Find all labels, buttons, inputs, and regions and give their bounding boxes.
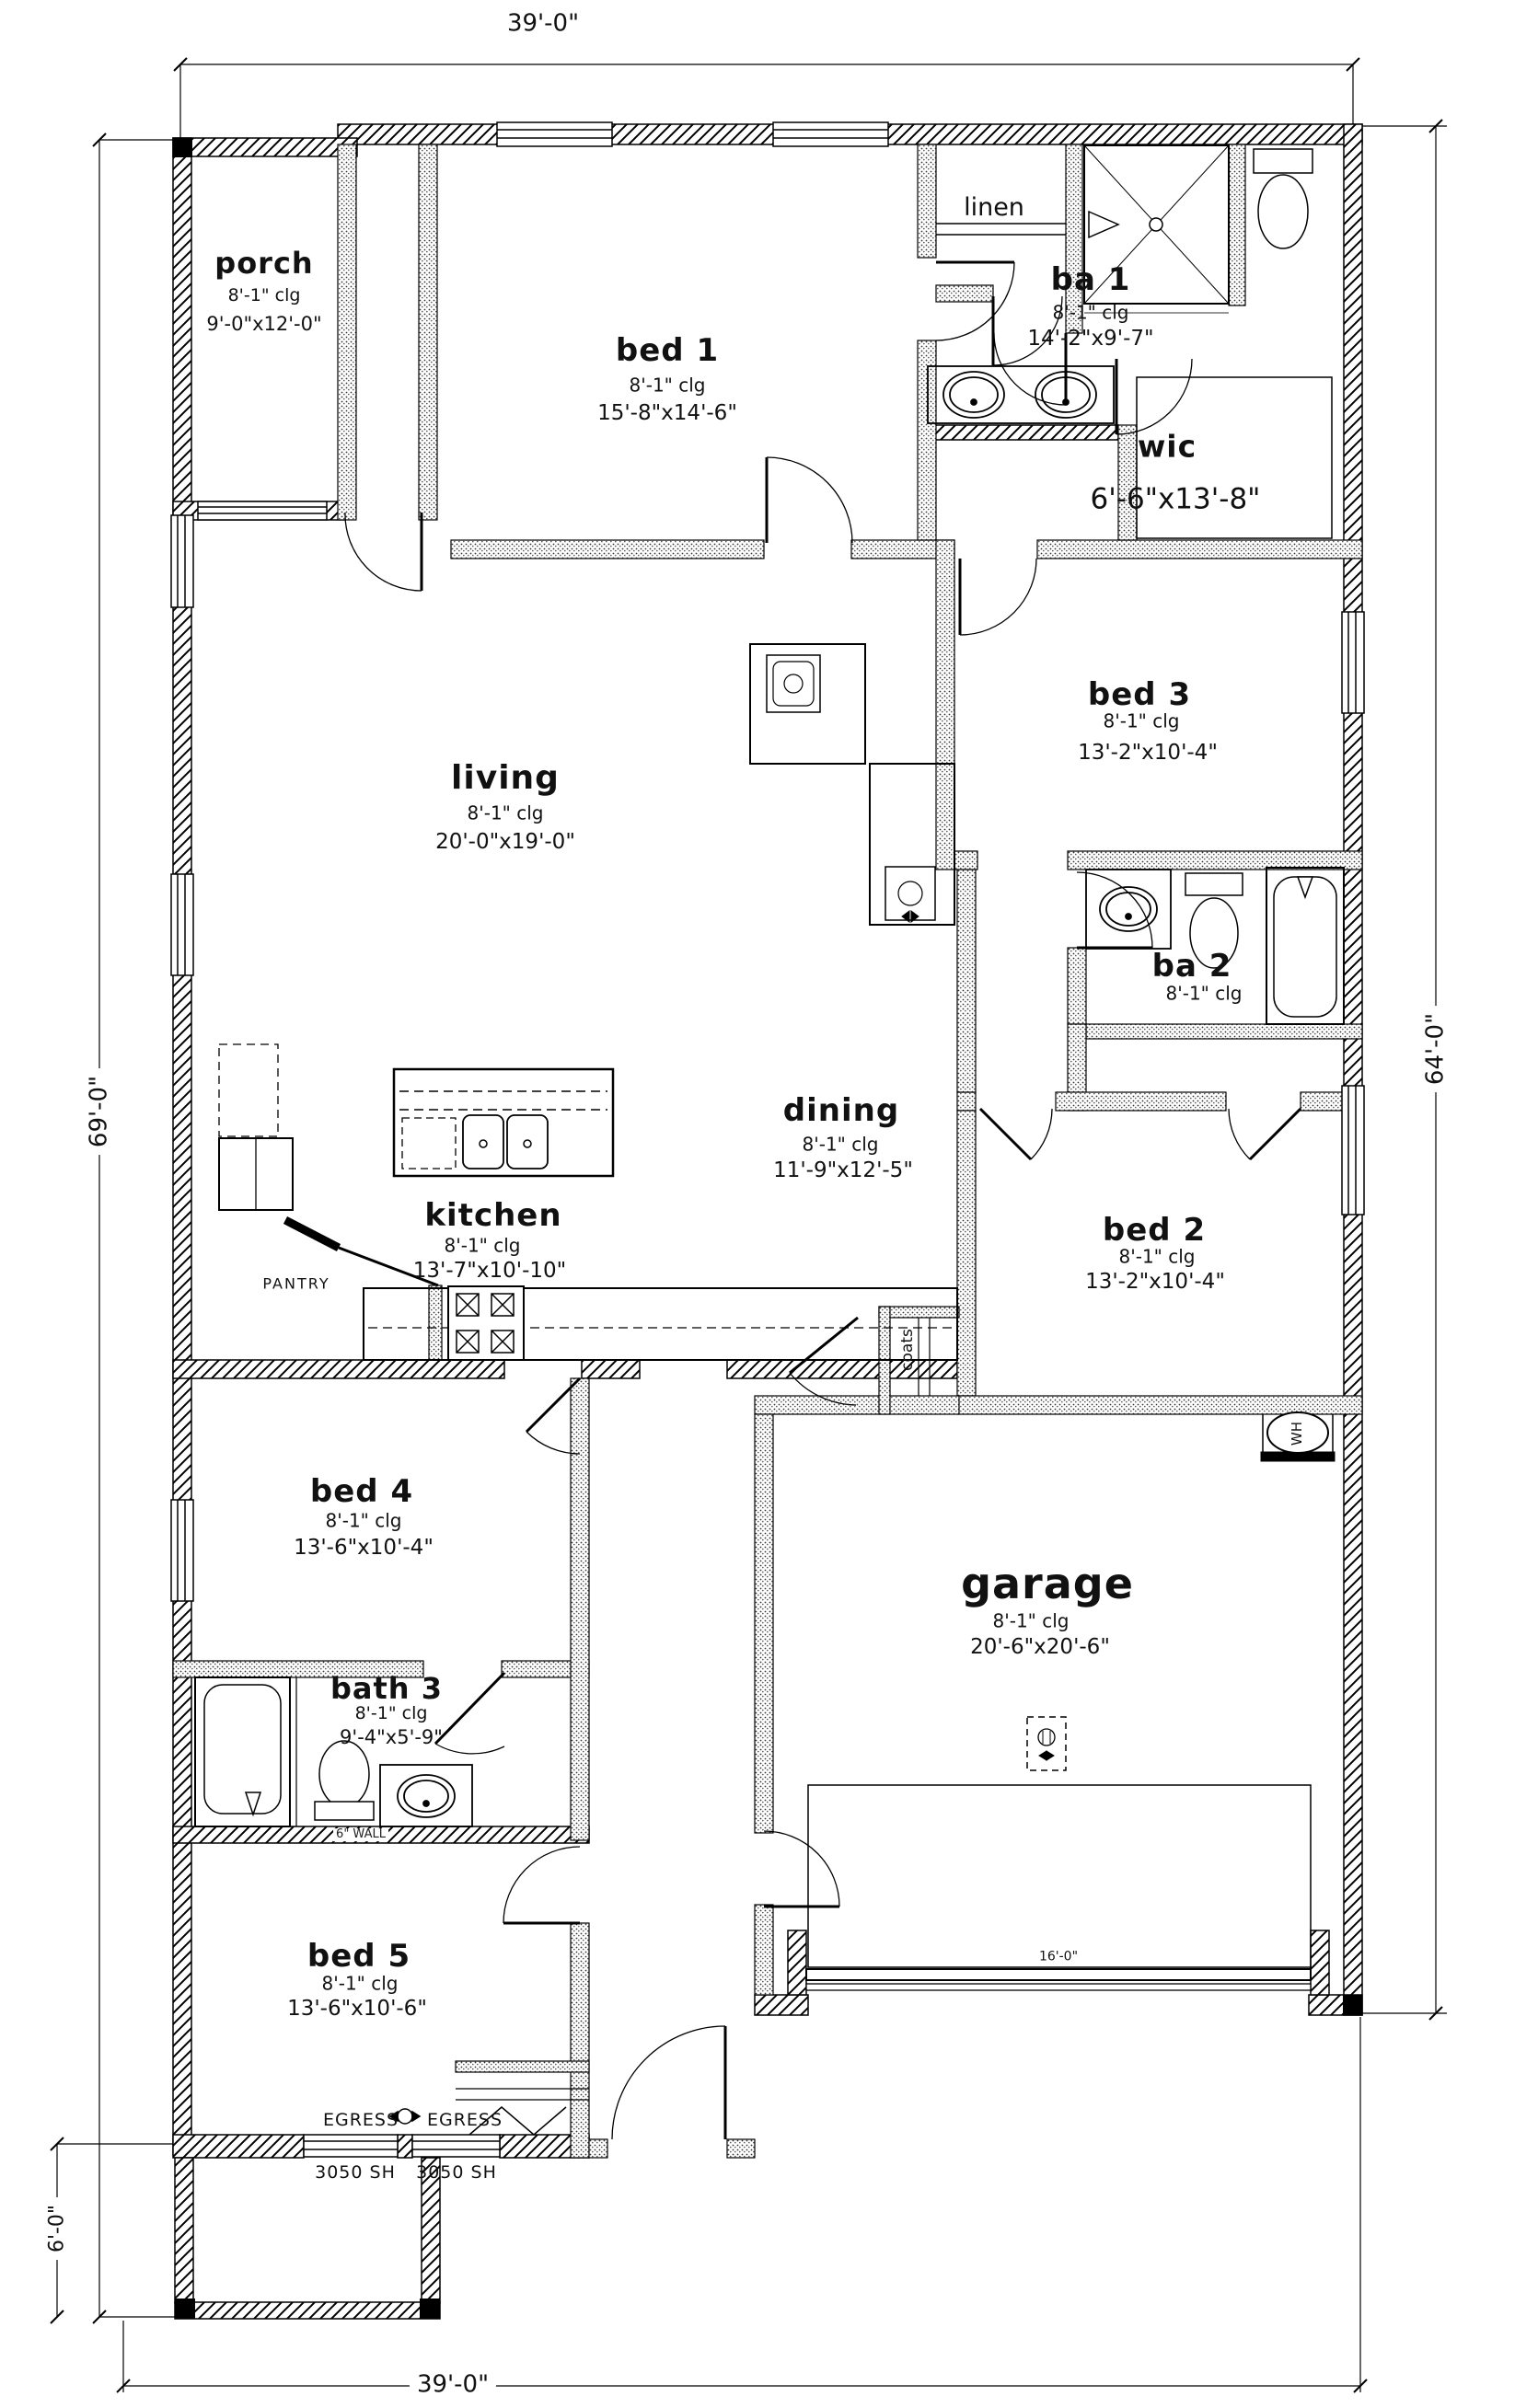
room-dining-clg: 8'-1" clg bbox=[803, 1135, 879, 1155]
bed3-door bbox=[960, 559, 1036, 635]
bed2-door-left bbox=[980, 1109, 1052, 1159]
dim-bottom: 39'-0" bbox=[410, 2372, 496, 2397]
room-bed2: bed 2 bbox=[1103, 1215, 1206, 1248]
room-bed5: bed 5 bbox=[307, 1941, 411, 1974]
room-ba1: ba 1 bbox=[1051, 264, 1131, 297]
room-bed5-size: 13'-6"x10'-6" bbox=[287, 1998, 427, 2020]
fridge-icon bbox=[219, 1138, 293, 1210]
room-porch: porch bbox=[214, 248, 313, 280]
room-ba2: ba 2 bbox=[1152, 951, 1232, 984]
dim-porch-depth: 6'-0" bbox=[46, 2197, 67, 2260]
room-pantry: PANTRY bbox=[262, 1277, 330, 1293]
bed3-window bbox=[1342, 612, 1364, 713]
front-door bbox=[345, 513, 422, 591]
wall-note: 6" WALL bbox=[333, 1828, 388, 1841]
dim-left: 69'-0" bbox=[87, 1068, 111, 1155]
room-bed4-clg: 8'-1" clg bbox=[326, 1512, 402, 1531]
living-window-1 bbox=[171, 515, 193, 607]
room-bed2-size: 13'-2"x10'-4" bbox=[1085, 1271, 1225, 1293]
coats-shelf bbox=[919, 1318, 930, 1396]
bath3-door bbox=[435, 1673, 504, 1754]
garage-door-width: 16'-0" bbox=[1039, 1951, 1078, 1964]
room-coats: coats bbox=[900, 1329, 917, 1371]
attic-access-icon bbox=[1027, 1717, 1066, 1770]
kitchen-island bbox=[394, 1069, 613, 1176]
ba2-door bbox=[1077, 872, 1152, 948]
living-window-2 bbox=[171, 874, 193, 975]
room-garage: garage bbox=[961, 1561, 1134, 1606]
bed5-door bbox=[503, 1847, 580, 1923]
linen-shelf bbox=[936, 224, 1066, 235]
garage-entry-door bbox=[764, 1831, 839, 1907]
room-bed1-size: 15'-8"x14'-6" bbox=[597, 402, 737, 424]
room-dining-size: 11'-9"x12'-5" bbox=[773, 1159, 913, 1181]
room-linen: linen bbox=[964, 195, 1024, 221]
utility-closet-1 bbox=[750, 644, 865, 764]
room-kitchen-clg: 8'-1" clg bbox=[445, 1237, 521, 1256]
room-garage-clg: 8'-1" clg bbox=[993, 1612, 1070, 1631]
vanity-ba2 bbox=[1086, 870, 1171, 949]
room-bed3: bed 3 bbox=[1088, 679, 1191, 712]
room-bed5-clg: 8'-1" clg bbox=[322, 1975, 399, 1994]
room-living-clg: 8'-1" clg bbox=[468, 804, 544, 824]
room-bed4: bed 4 bbox=[310, 1476, 413, 1509]
porch-window bbox=[198, 501, 327, 520]
room-kitchen: kitchen bbox=[424, 1200, 561, 1233]
room-living-size: 20'-0"x19'-0" bbox=[435, 831, 575, 853]
room-bed2-clg: 8'-1" clg bbox=[1119, 1248, 1196, 1267]
egress-label-2: EGRESS bbox=[427, 2112, 503, 2130]
egress-window-1 bbox=[304, 2135, 398, 2157]
toilet-icon-bath3 bbox=[315, 1741, 374, 1820]
room-bath3-clg: 8'-1" clg bbox=[355, 1705, 428, 1723]
dimension-lines bbox=[51, 58, 1447, 2392]
bed1-door bbox=[767, 457, 852, 543]
room-bath3: bath 3 bbox=[330, 1674, 443, 1705]
room-bath3-size: 9'-4"x5'-9" bbox=[340, 1727, 443, 1747]
room-bed3-clg: 8'-1" clg bbox=[1104, 712, 1180, 732]
room-bed4-size: 13'-6"x10'-4" bbox=[294, 1537, 434, 1559]
room-ba1-clg: 8'-1" clg bbox=[1053, 304, 1129, 323]
room-bed1-clg: 8'-1" clg bbox=[630, 376, 706, 396]
room-bed1: bed 1 bbox=[616, 335, 719, 368]
stove-icon bbox=[448, 1286, 524, 1360]
room-porch-clg: 8'-1" clg bbox=[228, 287, 301, 305]
wic-door bbox=[1116, 359, 1192, 434]
room-wic: wic bbox=[1138, 432, 1197, 464]
upper-cabinet bbox=[219, 1044, 278, 1136]
toilet-icon-ba1 bbox=[1254, 149, 1313, 248]
dim-top: 39'-0" bbox=[500, 11, 586, 36]
room-wic-size: 6'-6"x13'-8" bbox=[1091, 485, 1261, 515]
bed2-window bbox=[1342, 1086, 1364, 1215]
window-size-label-2: 3050 SH bbox=[416, 2164, 497, 2183]
room-porch-size: 9'-0"x12'-0" bbox=[206, 314, 321, 334]
bed2-door-right bbox=[1229, 1109, 1301, 1159]
tub-bath3 bbox=[195, 1677, 296, 1826]
room-bed3-size: 13'-2"x10'-4" bbox=[1078, 742, 1218, 764]
vanity-ba1 bbox=[928, 366, 1114, 423]
bed4-window bbox=[171, 1500, 193, 1601]
egress-window-2 bbox=[412, 2135, 500, 2157]
floor-plan-drawing bbox=[0, 0, 1538, 2408]
room-ba2-clg: 8'-1" clg bbox=[1166, 985, 1243, 1004]
vanity-bath3 bbox=[380, 1765, 472, 1826]
window-size-label-1: 3050 SH bbox=[315, 2164, 396, 2183]
room-dining: dining bbox=[783, 1095, 899, 1128]
bed1-window-2 bbox=[773, 122, 888, 146]
water-heater-label: WH bbox=[1290, 1422, 1305, 1446]
tub-ba2 bbox=[1266, 868, 1344, 1024]
back-door bbox=[612, 2026, 725, 2139]
bed1-window-1 bbox=[497, 122, 612, 146]
room-ba1-size: 14'-2"x9'-7" bbox=[1027, 328, 1153, 350]
egress-label-1: EGRESS bbox=[323, 2112, 399, 2130]
room-kitchen-size: 13'-7"x10'-10" bbox=[413, 1260, 566, 1282]
dim-right: 64'-0" bbox=[1423, 1006, 1448, 1092]
room-living: living bbox=[451, 761, 560, 796]
room-garage-size: 20'-6"x20'-6" bbox=[970, 1636, 1110, 1658]
floor-plan: 39'-0" 39'-0" 69'-0" 6'-0" 64'-0" 16'-0"… bbox=[0, 0, 1538, 2408]
